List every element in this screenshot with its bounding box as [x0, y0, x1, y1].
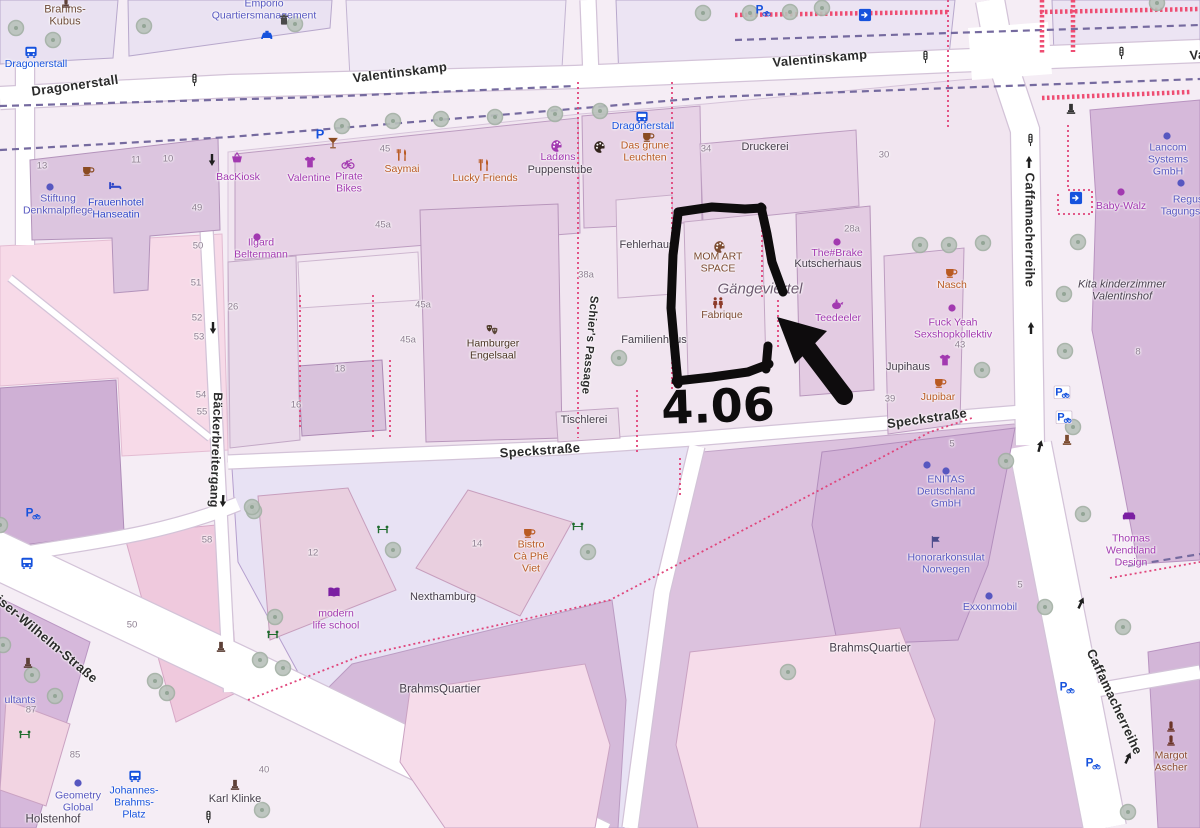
hand-drawn-arrow [806, 346, 844, 396]
hand-annotation-layer [0, 0, 1200, 828]
hand-drawn-box [676, 364, 769, 381]
hand-drawn-box [678, 207, 762, 212]
hand-drawn-box [766, 346, 768, 369]
hand-drawn-box [761, 207, 783, 292]
hand-drawn-box [671, 214, 678, 384]
map-canvas[interactable]: Brahms-KubusDragonerstallEmporioQuartier… [0, 0, 1200, 828]
